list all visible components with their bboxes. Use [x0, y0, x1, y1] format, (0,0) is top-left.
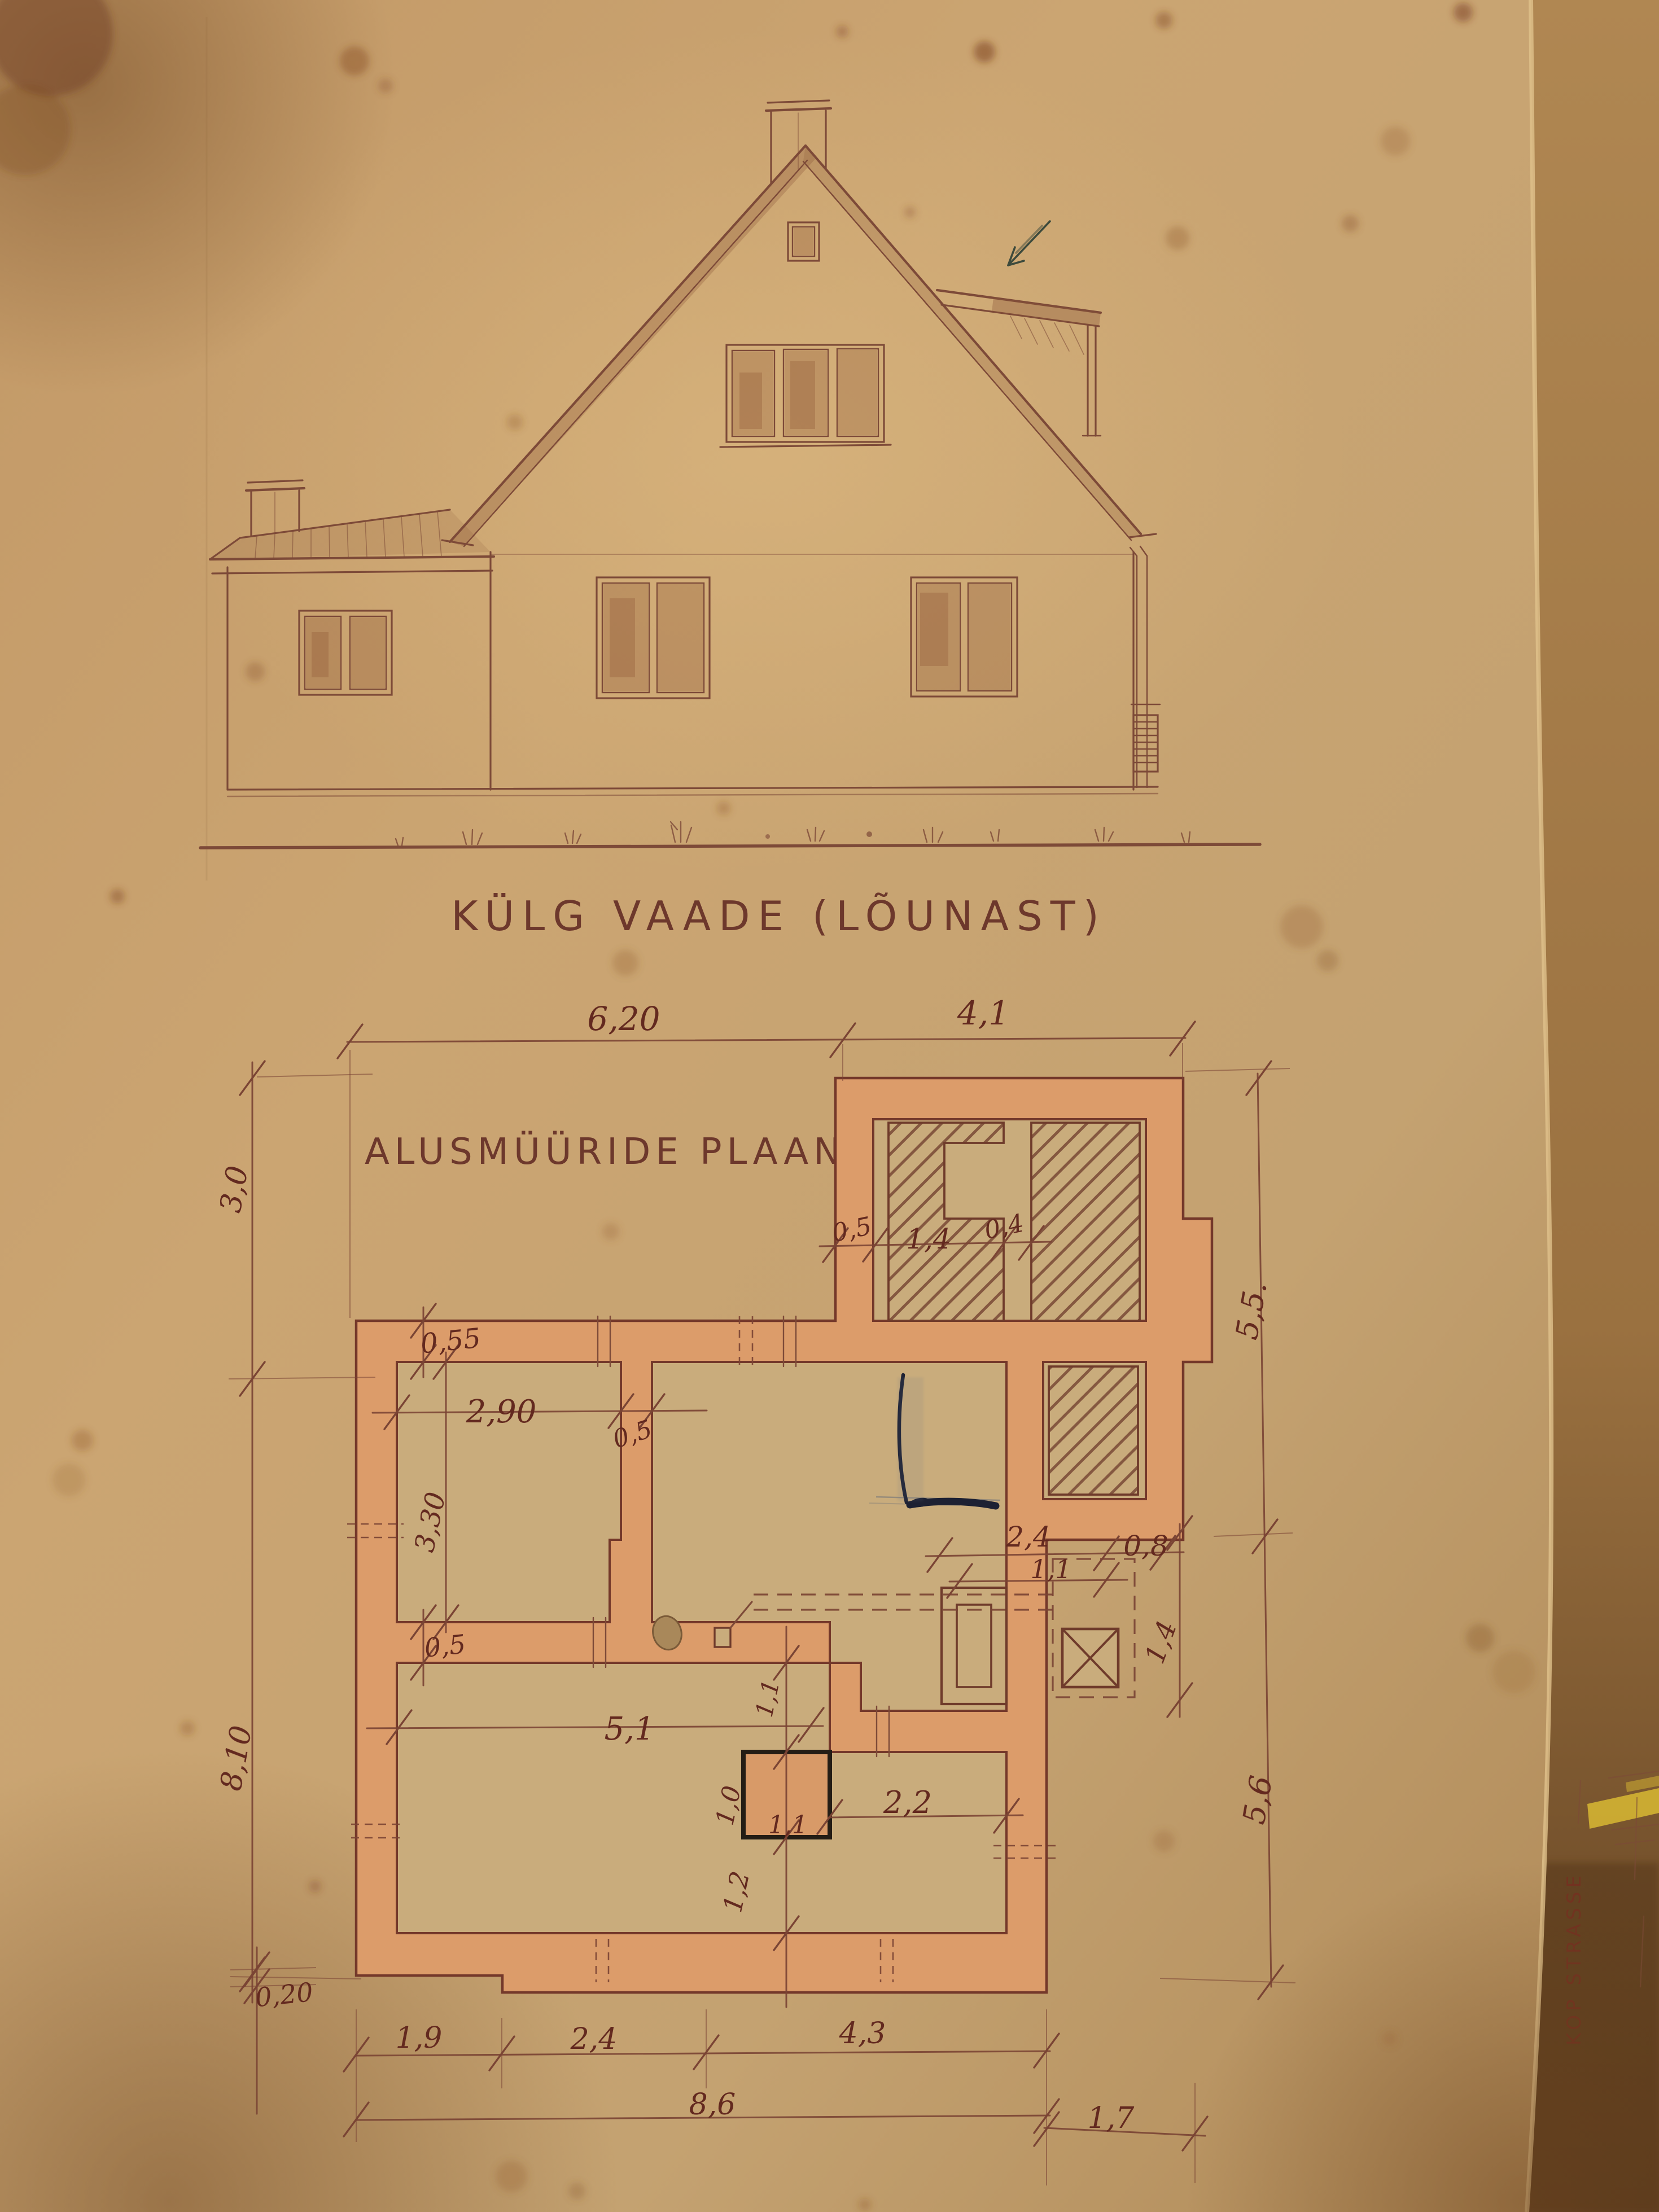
dimension-label: 0,5 — [423, 1628, 467, 1663]
blueprint-scan: KOP STRASSE — [0, 0, 1659, 2212]
hatched-block-wing — [1049, 1366, 1138, 1495]
gable-triple-window — [720, 345, 891, 447]
scanned-blueprint-page: KOP STRASSE — [0, 0, 1659, 2212]
dimension-label: 1,1 — [1030, 1554, 1071, 1584]
dimension-label: 0,55 — [419, 1322, 482, 1360]
attic-window — [788, 222, 819, 261]
dimension-label: 4,3 — [839, 2017, 886, 2051]
chimney-foundation — [942, 1588, 1006, 1704]
dimension-label: 0,8 — [1123, 1530, 1168, 1562]
dimension-label: 6,20 — [587, 1000, 660, 1038]
dimension-label: 1,7 — [1088, 2101, 1135, 2135]
crossed-pier — [1062, 1629, 1118, 1687]
dimension-label: 1,4 — [906, 1223, 951, 1255]
dimension-label: 1,1 — [768, 1811, 808, 1839]
dimension-label: 2,4 — [570, 2022, 618, 2056]
plan-title: ALUSMÜÜRIDE PLAAN — [365, 1131, 846, 1173]
dimension-label: 4,1 — [957, 994, 1009, 1032]
elevation-title: KÜLG VAADE (LÕUNAST) — [451, 892, 1107, 940]
dimension-label: 2,2 — [883, 1785, 932, 1820]
dimension-label: 2,90 — [466, 1394, 537, 1430]
dimension-label: 8,6 — [689, 2088, 736, 2122]
hatched-block-right — [1031, 1123, 1140, 1321]
dimension-label: 2,4 — [1005, 1521, 1051, 1553]
downpipe-ribs — [1133, 722, 1158, 763]
dimension-label: 0,20 — [254, 1977, 315, 2013]
dimension-label: 5,1 — [604, 1711, 654, 1747]
dimension-label: 1,9 — [396, 2021, 443, 2055]
